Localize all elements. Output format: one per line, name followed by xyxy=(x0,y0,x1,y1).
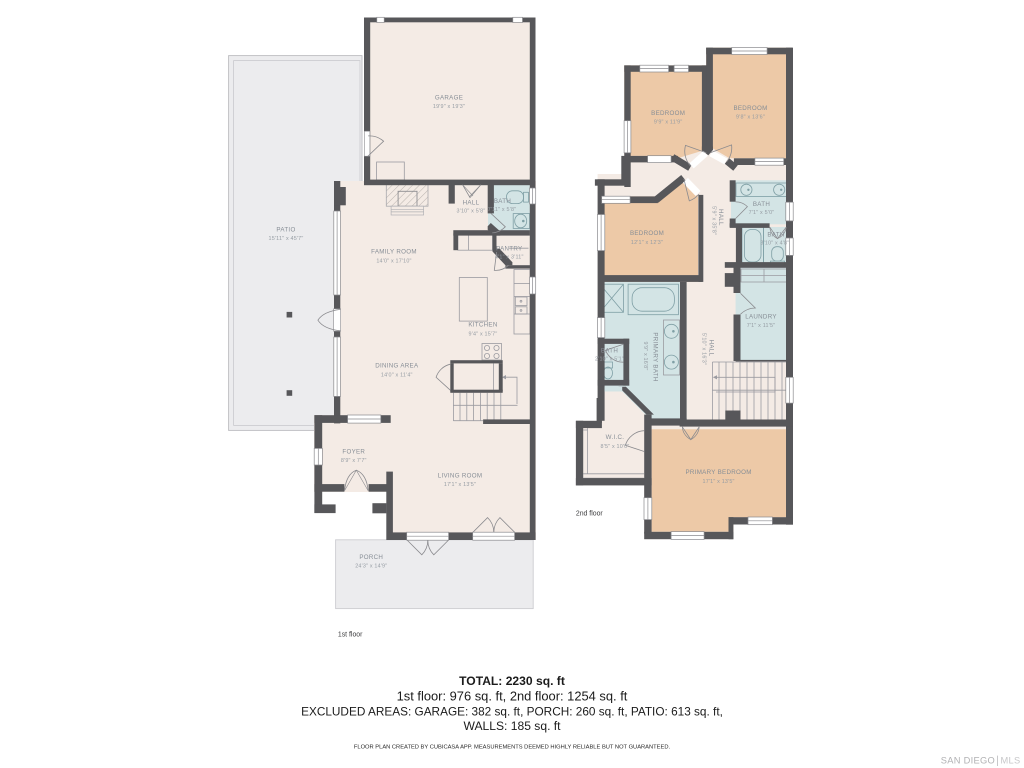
svg-text:14'0" x 17'10": 14'0" x 17'10" xyxy=(376,259,411,265)
svg-text:BATH: BATH xyxy=(767,232,784,239)
svg-text:EXCLUDED AREAS: GARAGE: 382 sq: EXCLUDED AREAS: GARAGE: 382 sq. ft, PORC… xyxy=(301,705,723,719)
svg-text:7'11" x 5'8": 7'11" x 5'8" xyxy=(488,207,517,213)
svg-text:HALL: HALL xyxy=(463,200,480,207)
svg-text:WALLS: 185 sq. ft: WALLS: 185 sq. ft xyxy=(463,719,561,733)
svg-text:9'9" x 11'9": 9'9" x 11'9" xyxy=(654,120,683,126)
svg-text:2'10" x 5'1": 2'10" x 5'1" xyxy=(595,357,624,363)
svg-text:PATIO: PATIO xyxy=(276,227,295,234)
svg-text:12'1" x 12'3": 12'1" x 12'3" xyxy=(631,240,663,246)
svg-text:FOYER: FOYER xyxy=(342,449,365,456)
svg-text:HALL: HALL xyxy=(708,340,715,357)
svg-text:14'0" x 11'4": 14'0" x 11'4" xyxy=(381,373,413,379)
svg-text:8'5" x 10'0": 8'5" x 10'0" xyxy=(601,444,630,450)
svg-text:3'10" x 5'8": 3'10" x 5'8" xyxy=(457,209,486,215)
svg-text:1st floor: 976 sq. ft, 2nd flo: 1st floor: 976 sq. ft, 2nd floor: 1254 s… xyxy=(397,688,628,703)
svg-text:15'11" x 45'7": 15'11" x 45'7" xyxy=(269,236,304,242)
svg-text:BEDROOM: BEDROOM xyxy=(651,110,685,117)
svg-text:19'9" x 19'3": 19'9" x 19'3" xyxy=(433,104,465,110)
svg-text:PRIMARY BATH: PRIMARY BATH xyxy=(652,332,659,381)
svg-text:W.I.C.: W.I.C. xyxy=(606,434,625,441)
svg-text:9'9" x 16'8": 9'9" x 16'8" xyxy=(642,342,648,371)
svg-text:PORCH: PORCH xyxy=(359,554,383,561)
svg-text:GARAGE: GARAGE xyxy=(435,95,463,102)
svg-text:4'1" x 3'11": 4'1" x 3'11" xyxy=(495,255,524,261)
svg-text:FLOOR PLAN CREATED BY CUBICASA: FLOOR PLAN CREATED BY CUBICASA APP. MEAS… xyxy=(354,744,671,750)
svg-text:BATH: BATH xyxy=(494,198,511,205)
svg-text:DINING AREA: DINING AREA xyxy=(375,363,419,370)
svg-text:PRIMARY BEDROOM: PRIMARY BEDROOM xyxy=(686,469,752,476)
svg-text:LIVING ROOM: LIVING ROOM xyxy=(438,473,483,480)
svg-text:9'8" x 13'6": 9'8" x 13'6" xyxy=(736,115,765,121)
svg-text:BATH: BATH xyxy=(753,201,770,208)
svg-text:BEDROOM: BEDROOM xyxy=(630,230,664,237)
svg-text:1st floor: 1st floor xyxy=(338,631,363,638)
svg-text:24'3" x 14'9": 24'3" x 14'9" xyxy=(355,564,387,570)
svg-text:5'9" x 35'8": 5'9" x 35'8" xyxy=(710,206,716,235)
svg-text:5'10" x 16'3": 5'10" x 16'3" xyxy=(701,333,707,365)
svg-text:3'10" x 4'8": 3'10" x 4'8" xyxy=(760,241,789,247)
svg-text:7'1" x 5'0": 7'1" x 5'0" xyxy=(749,210,775,216)
svg-text:BATH: BATH xyxy=(601,348,618,355)
svg-text:HALL: HALL xyxy=(717,209,724,226)
svg-text:17'1" x 13'5": 17'1" x 13'5" xyxy=(444,482,476,488)
svg-text:9'4" x 15'7": 9'4" x 15'7" xyxy=(469,332,498,338)
svg-text:PANTRY: PANTRY xyxy=(496,246,522,253)
svg-text:TOTAL: 2230 sq. ft: TOTAL: 2230 sq. ft xyxy=(459,674,565,688)
svg-text:17'1" x 13'5": 17'1" x 13'5" xyxy=(703,479,735,485)
svg-text:SAN DIEGO│MLS: SAN DIEGO│MLS xyxy=(941,755,1021,766)
svg-text:8'9" x 7'7": 8'9" x 7'7" xyxy=(341,458,367,464)
svg-text:LAUNDRY: LAUNDRY xyxy=(745,314,777,321)
svg-text:KITCHEN: KITCHEN xyxy=(468,322,497,329)
svg-text:2nd floor: 2nd floor xyxy=(576,511,604,518)
svg-text:FAMILY ROOM: FAMILY ROOM xyxy=(371,249,417,256)
svg-text:7'1" x 11'5": 7'1" x 11'5" xyxy=(747,323,776,329)
svg-text:BEDROOM: BEDROOM xyxy=(733,105,767,112)
